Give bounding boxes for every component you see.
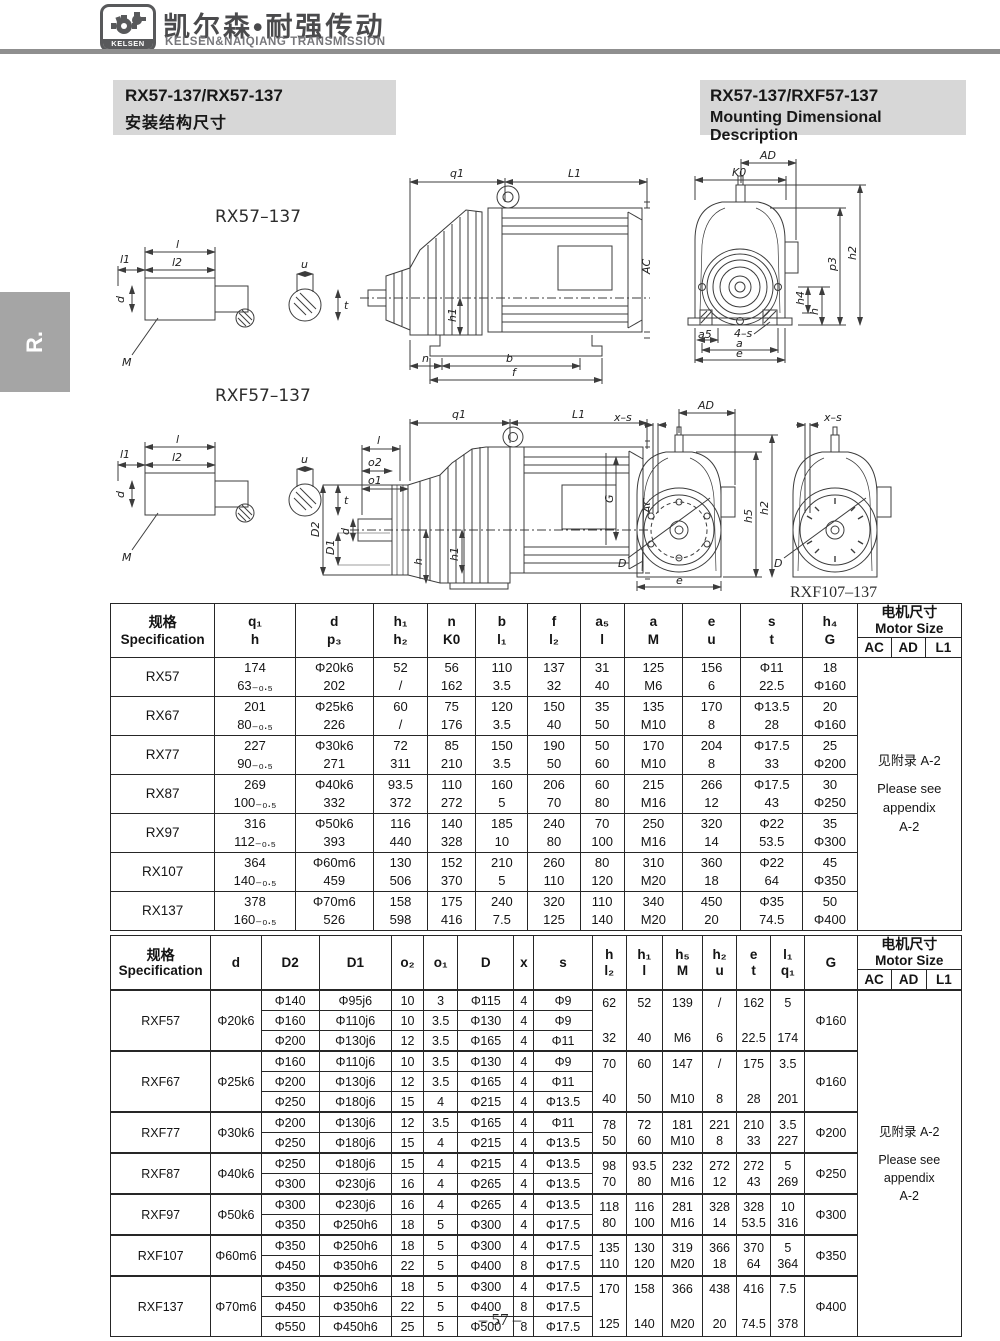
col-header-cell: d xyxy=(211,936,261,991)
value-cell: 5 xyxy=(424,1215,458,1236)
motor-sub-header-cell: AC xyxy=(857,970,891,991)
band-cell: 27243 xyxy=(737,1153,771,1194)
band-cell: 5174 xyxy=(771,990,805,1051)
band-cell: 7040 xyxy=(592,1051,626,1112)
dim-d: d xyxy=(114,295,127,303)
shaft-dia-cell: Φ50k6 xyxy=(211,1194,261,1235)
dim-D1: D1 xyxy=(324,540,337,555)
dim-t-rxf: t xyxy=(344,494,349,507)
dual-cell: 170M10 xyxy=(624,736,682,775)
value-cell: Φ160 xyxy=(261,1011,319,1031)
value-cell: 4 xyxy=(424,1174,458,1195)
g-dia-cell: Φ160 xyxy=(805,990,857,1051)
dim-D2: D2 xyxy=(309,522,322,537)
band-cell: 36618 xyxy=(703,1235,737,1276)
dual-cell: 364140₋₀.₅ xyxy=(215,853,295,892)
value-cell: 4 xyxy=(514,1174,534,1195)
band-cell: 3.5227 xyxy=(771,1112,805,1153)
value-cell: 16 xyxy=(391,1174,423,1195)
value-cell: 18 xyxy=(391,1276,423,1297)
dim-l1: l1 xyxy=(120,253,130,266)
dual-cell: 20670 xyxy=(528,775,580,814)
appendix-note-cell: 见附录 A-2Please seeappendixA-2 xyxy=(857,990,961,1337)
value-cell: Φ250h6 xyxy=(319,1235,391,1256)
value-cell: Φ350 xyxy=(261,1215,319,1236)
dual-cell: 2048 xyxy=(682,736,740,775)
dual-cell: 45Φ350 xyxy=(803,853,857,892)
dual-cell: 35Φ300 xyxy=(803,814,857,853)
value-cell: Φ17.5 xyxy=(534,1256,592,1277)
value-cell: Φ13.5 xyxy=(534,1153,592,1174)
dim-l-rxf: l xyxy=(377,434,380,447)
dim-t: t xyxy=(344,299,349,312)
col-header-cell: q₁h xyxy=(215,604,295,658)
spec-cell: RX87 xyxy=(111,775,215,814)
dual-cell: 56162 xyxy=(428,658,476,697)
col-header-cell: h₂u xyxy=(703,936,737,991)
dual-cell: 310M20 xyxy=(624,853,682,892)
rx-end-view-drawing: AD K0 p3 h2 h4 h a5 4–s a e xyxy=(650,145,980,383)
rxf-drawing-caption: RXF57–137 xyxy=(215,386,311,406)
value-cell: Φ250h6 xyxy=(319,1276,391,1297)
dual-cell: 25Φ200 xyxy=(803,736,857,775)
dual-cell: Φ20k6202 xyxy=(295,658,373,697)
dual-cell: Φ2264 xyxy=(741,853,803,892)
dual-cell: Φ50k6393 xyxy=(295,814,373,853)
dual-cell: 2105 xyxy=(476,853,528,892)
col-header-cell: h₁h₂ xyxy=(373,604,427,658)
spec-cell: RX77 xyxy=(111,736,215,775)
value-cell: Φ180j6 xyxy=(319,1133,391,1154)
rxf107-caption: RXF107–137 xyxy=(790,584,877,601)
col-header-cell: h₄G xyxy=(803,604,857,658)
table-row: RX5717463₋₀.₅Φ20k620252/561621103.513732… xyxy=(111,658,962,697)
value-cell: Φ400 xyxy=(458,1256,514,1277)
dim-l2-rxf: l2 xyxy=(172,451,182,464)
dual-cell: 116440 xyxy=(373,814,427,853)
col-header-cell: l₁q₁ xyxy=(771,936,805,991)
value-cell: 4 xyxy=(424,1092,458,1113)
value-cell: 3.5 xyxy=(424,1031,458,1052)
value-cell: Φ300 xyxy=(458,1235,514,1256)
motor-size-header-cell: 电机尺寸Motor Size xyxy=(857,604,961,638)
band-cell: 2218 xyxy=(703,1112,737,1153)
value-cell: Φ165 xyxy=(458,1031,514,1052)
title-right-model: RX57-137/RXF57-137 xyxy=(710,86,966,106)
value-cell: 4 xyxy=(424,1194,458,1215)
table-row: RXF107Φ60m6Φ350Φ250h6185Φ3004Φ17.5135110… xyxy=(111,1235,962,1256)
title-right-en: Mounting Dimensional Description xyxy=(710,109,966,145)
col-header-cell: D1 xyxy=(319,936,391,991)
value-cell: 4 xyxy=(514,1194,534,1215)
shaft-dia-cell: Φ30k6 xyxy=(211,1112,261,1153)
dual-cell: 316112₋₀.₅ xyxy=(215,814,295,853)
dim-o2: o2 xyxy=(368,456,382,469)
value-cell: 4 xyxy=(514,1051,534,1072)
title-block-left: RX57-137/RX57-137 安装结构尺寸 xyxy=(113,80,396,135)
motor-sub-header-cell: AD xyxy=(891,638,925,658)
title-left-cn: 安装结构尺寸 xyxy=(125,109,396,133)
table-row: RX97316112₋₀.₅Φ50k6393116440140328185102… xyxy=(111,814,962,853)
dual-cell: 1605 xyxy=(476,775,528,814)
value-cell: 15 xyxy=(391,1133,423,1154)
value-cell: Φ300 xyxy=(458,1215,514,1236)
dim-h2-rxf: h2 xyxy=(758,501,771,515)
dual-cell: 1203.5 xyxy=(476,697,528,736)
value-cell: 5 xyxy=(424,1276,458,1297)
dual-cell: 19050 xyxy=(528,736,580,775)
value-cell: 12 xyxy=(391,1112,423,1133)
col-header-cell: st xyxy=(741,604,803,658)
col-header-cell: hl₂ xyxy=(592,936,626,991)
dim-xs-left: x–s xyxy=(613,411,632,424)
value-cell: 4 xyxy=(514,1133,534,1154)
dim-m: M xyxy=(122,356,132,369)
band-cell: 130120 xyxy=(626,1235,662,1276)
band-cell: 139M6 xyxy=(662,990,702,1051)
value-cell: Φ200 xyxy=(261,1031,319,1052)
value-cell: 10 xyxy=(391,1051,423,1072)
band-cell: 93.580 xyxy=(626,1153,662,1194)
table-row: RXF97Φ50k6Φ300Φ230j6164Φ2654Φ13.51188011… xyxy=(111,1194,962,1215)
col-header-cell: h₅M xyxy=(662,936,702,991)
dual-cell: 72311 xyxy=(373,736,427,775)
motor-sub-header-cell: L1 xyxy=(925,638,961,658)
value-cell: Φ17.5 xyxy=(534,1235,592,1256)
dim-l2: l2 xyxy=(172,256,182,269)
value-cell: Φ9 xyxy=(534,1011,592,1031)
value-cell: Φ130j6 xyxy=(319,1112,391,1133)
value-cell: 12 xyxy=(391,1031,423,1052)
spec-cell: RX97 xyxy=(111,814,215,853)
value-cell: Φ350h6 xyxy=(319,1256,391,1277)
dim-L1: L1 xyxy=(568,167,581,180)
dual-cell: 52/ xyxy=(373,658,427,697)
gear-icon xyxy=(106,11,150,39)
dim-l: l xyxy=(176,238,179,251)
title-left-model: RX57-137/RX57-137 xyxy=(125,86,396,106)
value-cell: Φ265 xyxy=(458,1174,514,1195)
dual-cell: 30Φ250 xyxy=(803,775,857,814)
dim-h5: h5 xyxy=(742,509,755,523)
table-row: RXF137Φ70m6Φ350Φ250h6185Φ3004Φ17.5170125… xyxy=(111,1276,962,1297)
dual-cell: 3550 xyxy=(580,697,624,736)
value-cell: Φ17.5 xyxy=(534,1215,592,1236)
band-cell: 9870 xyxy=(592,1153,626,1194)
value-cell: 15 xyxy=(391,1153,423,1174)
value-cell: 3.5 xyxy=(424,1112,458,1133)
col-header-cell: G xyxy=(805,936,857,991)
value-cell: Φ9 xyxy=(534,990,592,1011)
spec-cell: RXF97 xyxy=(111,1194,211,1235)
spec-cell: RXF107 xyxy=(111,1235,211,1276)
dim-h1-rxf: h1 xyxy=(448,547,461,561)
band-cell: 7260 xyxy=(626,1112,662,1153)
value-cell: Φ215 xyxy=(458,1133,514,1154)
dual-cell: 3140 xyxy=(580,658,624,697)
value-cell: Φ130j6 xyxy=(319,1031,391,1052)
dual-cell: Φ13.528 xyxy=(741,697,803,736)
dual-cell: Φ3574.5 xyxy=(741,892,803,931)
dim-L1-rxf: L1 xyxy=(572,408,585,421)
band-cell: 5240 xyxy=(626,990,662,1051)
rx-side-view-drawing: RX57–137 xyxy=(110,150,650,388)
table-row: RXF57Φ20k6Φ140Φ95j6103Φ1154Φ962325240139… xyxy=(111,990,962,1011)
dual-cell: 45020 xyxy=(682,892,740,931)
dual-cell: 1503.5 xyxy=(476,736,528,775)
value-cell: 5 xyxy=(424,1256,458,1277)
dual-cell: 13732 xyxy=(528,658,580,697)
dual-cell: 36018 xyxy=(682,853,740,892)
dim-u-rxf: u xyxy=(301,453,308,466)
table-row: RXF77Φ30k6Φ200Φ130j6123.5Φ1654Φ117850726… xyxy=(111,1112,962,1133)
dual-cell: 1103.5 xyxy=(476,658,528,697)
dim-AC: AC xyxy=(640,258,650,275)
dual-cell: 125M6 xyxy=(624,658,682,697)
col-header-cell: et xyxy=(737,936,771,991)
dual-cell: 93.5372 xyxy=(373,775,427,814)
col-header-cell: dp₃ xyxy=(295,604,373,658)
value-cell: 10 xyxy=(391,1011,423,1031)
band-cell: 5364 xyxy=(771,1235,805,1276)
band-cell: 37064 xyxy=(737,1235,771,1276)
dim-D-right: D xyxy=(774,557,782,570)
rx-dimension-table: 规格Specificationq₁hdp₃h₁h₂nK0bl₁fl₂a₅laMe… xyxy=(110,603,962,931)
table-row: RX87269100₋₀.₅Φ40k633293.537211027216052… xyxy=(111,775,962,814)
value-cell: Φ265 xyxy=(458,1194,514,1215)
dual-cell: 320125 xyxy=(528,892,580,931)
value-cell: Φ130 xyxy=(458,1051,514,1072)
value-cell: 18 xyxy=(391,1215,423,1236)
dim-e-rxf: e xyxy=(676,574,683,587)
band-cell: 281M16 xyxy=(662,1194,702,1235)
band-cell: 6232 xyxy=(592,990,626,1051)
value-cell: 4 xyxy=(514,990,534,1011)
col-header-cell: o₂ xyxy=(391,936,423,991)
value-cell: Φ200 xyxy=(261,1112,319,1133)
table-row: RX7722790₋₀.₅Φ30k627172311852101503.5190… xyxy=(111,736,962,775)
value-cell: 10 xyxy=(391,990,423,1011)
value-cell: Φ95j6 xyxy=(319,990,391,1011)
dim-q1: q1 xyxy=(450,167,464,180)
header-divider xyxy=(0,49,1000,54)
band-cell: 3.5201 xyxy=(771,1051,805,1112)
value-cell: 22 xyxy=(391,1256,423,1277)
dual-cell: 215M16 xyxy=(624,775,682,814)
dual-cell: 20180₋₀.₅ xyxy=(215,697,295,736)
col-header-cell: eu xyxy=(682,604,740,658)
dual-cell: 70100 xyxy=(580,814,624,853)
dim-h4: h4 xyxy=(794,291,807,305)
table-row: RX6720180₋₀.₅Φ25k622660/751761203.515040… xyxy=(111,697,962,736)
value-cell: Φ13.5 xyxy=(534,1092,592,1113)
dual-cell: 22790₋₀.₅ xyxy=(215,736,295,775)
value-cell: Φ450 xyxy=(261,1256,319,1277)
band-cell: /8 xyxy=(703,1051,737,1112)
dim-d-rxf: d xyxy=(339,527,352,535)
value-cell: 3.5 xyxy=(424,1072,458,1092)
spec-cell: RX107 xyxy=(111,853,215,892)
band-cell: /6 xyxy=(703,990,737,1051)
shaft-dia-cell: Φ20k6 xyxy=(211,990,261,1051)
rxf-end-views-drawing: x–s AD h5 h2 G D e x–s D RXF107–137 xyxy=(600,395,1000,605)
band-cell: 147M10 xyxy=(662,1051,702,1112)
dim-h: h xyxy=(808,308,821,315)
dim-o1: o1 xyxy=(368,474,382,487)
value-cell: 4 xyxy=(424,1153,458,1174)
dim-b: b xyxy=(506,352,513,365)
value-cell: Φ13.5 xyxy=(534,1174,592,1195)
table-row: RXF87Φ40k6Φ250Φ180j6154Φ2154Φ13.5987093.… xyxy=(111,1153,962,1174)
side-tab-r: R. xyxy=(0,292,70,392)
band-cell: 10316 xyxy=(771,1194,805,1235)
col-header-cell: a₅l xyxy=(580,604,624,658)
dim-D-left: D xyxy=(618,557,626,570)
dual-cell: 250M16 xyxy=(624,814,682,853)
col-header-cell: aM xyxy=(624,604,682,658)
band-cell: 232M16 xyxy=(662,1153,702,1194)
value-cell: Φ230j6 xyxy=(319,1194,391,1215)
dim-AD: AD xyxy=(759,149,776,162)
band-cell: 7850 xyxy=(592,1112,626,1153)
dual-cell: 17463₋₀.₅ xyxy=(215,658,295,697)
value-cell: Φ300 xyxy=(261,1194,319,1215)
dim-a5: a5 xyxy=(698,328,712,341)
spec-cell: RX137 xyxy=(111,892,215,931)
dual-cell: 130506 xyxy=(373,853,427,892)
dim-e: e xyxy=(736,347,743,360)
dual-cell: 20Φ160 xyxy=(803,697,857,736)
value-cell: Φ350 xyxy=(261,1235,319,1256)
col-header-cell: fl₂ xyxy=(528,604,580,658)
catalog-page: KELSEN 凯尔森•耐强传动 KELSEN&NAIQIANG TRANSMIS… xyxy=(0,0,1000,1341)
dual-cell: Φ17.533 xyxy=(741,736,803,775)
value-cell: Φ11 xyxy=(534,1031,592,1052)
dual-cell: 15040 xyxy=(528,697,580,736)
band-cell: 11880 xyxy=(592,1194,626,1235)
col-header-cell: o₁ xyxy=(424,936,458,991)
col-header-cell: h₁l xyxy=(626,936,662,991)
value-cell: Φ9 xyxy=(534,1051,592,1072)
dual-cell: 340M20 xyxy=(624,892,682,931)
value-cell: Φ215 xyxy=(458,1092,514,1113)
value-cell: 15 xyxy=(391,1092,423,1113)
table-row: RX137378160₋₀.₅Φ70m65261585981754162407.… xyxy=(111,892,962,931)
band-cell: 32814 xyxy=(703,1194,737,1235)
dual-cell: Φ2253.5 xyxy=(741,814,803,853)
col-header-cell: D2 xyxy=(261,936,319,991)
dim-f: f xyxy=(512,366,518,379)
spec-header-cell: 规格Specification xyxy=(111,936,211,991)
dual-cell: 18510 xyxy=(476,814,528,853)
value-cell: Φ230j6 xyxy=(319,1174,391,1195)
value-cell: Φ13.5 xyxy=(534,1133,592,1154)
value-cell: Φ180j6 xyxy=(319,1092,391,1113)
value-cell: 4 xyxy=(514,1235,534,1256)
value-cell: 4 xyxy=(514,1215,534,1236)
value-cell: 4 xyxy=(514,1153,534,1174)
band-cell: 21033 xyxy=(737,1112,771,1153)
value-cell: Φ17.5 xyxy=(534,1276,592,1297)
band-cell: 5269 xyxy=(771,1153,805,1194)
spec-header-cell: 规格Specification xyxy=(111,604,215,658)
shaft-dia-cell: Φ40k6 xyxy=(211,1153,261,1194)
band-cell: 17528 xyxy=(737,1051,771,1112)
rxf-side-view-drawing: RXF57–137 xyxy=(110,385,650,600)
value-cell: Φ250 xyxy=(261,1133,319,1154)
dual-cell: 158598 xyxy=(373,892,427,931)
title-block-right: RX57-137/RXF57-137 Mounting Dimensional … xyxy=(700,80,966,135)
motor-sub-header-cell: AC xyxy=(857,638,891,658)
dual-cell: 110140 xyxy=(580,892,624,931)
value-cell: 3.5 xyxy=(424,1051,458,1072)
band-cell: 319M20 xyxy=(662,1235,702,1276)
dual-cell: Φ25k6226 xyxy=(295,697,373,736)
dual-cell: Φ17.543 xyxy=(741,775,803,814)
dual-cell: 1566 xyxy=(682,658,740,697)
value-cell: 4 xyxy=(514,1092,534,1113)
value-cell: 3.5 xyxy=(424,1011,458,1031)
dim-h-rxf: h xyxy=(412,558,425,565)
dual-cell: 175416 xyxy=(428,892,476,931)
value-cell: 5 xyxy=(424,1235,458,1256)
value-cell: 4 xyxy=(424,1133,458,1154)
value-cell: 4 xyxy=(514,1112,534,1133)
dim-q1-rxf: q1 xyxy=(452,408,466,421)
dim-m-rxf: M xyxy=(122,551,132,564)
value-cell: Φ180j6 xyxy=(319,1153,391,1174)
rx-table-body: 规格Specificationq₁hdp₃h₁h₂nK0bl₁fl₂a₅laMe… xyxy=(111,604,962,931)
shaft-dia-cell: Φ60m6 xyxy=(211,1235,261,1276)
value-cell: Φ165 xyxy=(458,1112,514,1133)
value-cell: Φ250 xyxy=(261,1153,319,1174)
value-cell: 3 xyxy=(424,990,458,1011)
value-cell: Φ130 xyxy=(458,1011,514,1031)
value-cell: Φ110j6 xyxy=(319,1011,391,1031)
spec-cell: RXF57 xyxy=(111,990,211,1051)
dual-cell: 60/ xyxy=(373,697,427,736)
dual-cell: 32014 xyxy=(682,814,740,853)
dual-cell: 24080 xyxy=(528,814,580,853)
dim-l-rxf-shaft: l xyxy=(176,433,179,446)
band-cell: 135110 xyxy=(592,1235,626,1276)
dim-p3: p3 xyxy=(826,257,839,272)
value-cell: Φ165 xyxy=(458,1072,514,1092)
col-header-cell: x xyxy=(514,936,534,991)
dual-cell: 80120 xyxy=(580,853,624,892)
brand-logo: KELSEN xyxy=(100,4,156,52)
logo-text: KELSEN xyxy=(103,39,153,49)
dim-d-rxf-shaft: d xyxy=(114,490,127,498)
dual-cell: 85210 xyxy=(428,736,476,775)
value-cell: Φ130j6 xyxy=(319,1072,391,1092)
value-cell: 8 xyxy=(514,1256,534,1277)
g-dia-cell: Φ200 xyxy=(805,1112,857,1153)
dim-h1: h1 xyxy=(446,308,459,322)
spec-cell: RX57 xyxy=(111,658,215,697)
dual-cell: 26612 xyxy=(682,775,740,814)
value-cell: Φ215 xyxy=(458,1153,514,1174)
spec-cell: RXF87 xyxy=(111,1153,211,1194)
spec-cell: RXF67 xyxy=(111,1051,211,1112)
value-cell: Φ115 xyxy=(458,990,514,1011)
dim-h2: h2 xyxy=(846,246,859,260)
value-cell: Φ160 xyxy=(261,1051,319,1072)
dual-cell: 140328 xyxy=(428,814,476,853)
shaft-dia-cell: Φ25k6 xyxy=(211,1051,261,1112)
dim-n: n xyxy=(422,352,429,365)
dual-cell: Φ60m6459 xyxy=(295,853,373,892)
